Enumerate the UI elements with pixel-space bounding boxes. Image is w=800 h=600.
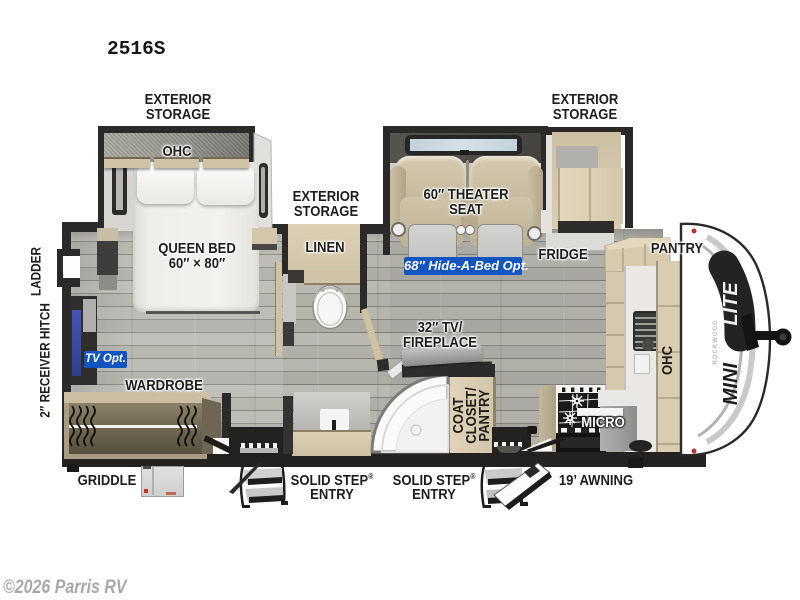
svg-text:ROCKWOOD: ROCKWOOD <box>713 320 719 365</box>
svg-text:LITE: LITE <box>720 282 742 326</box>
svg-text:MINI: MINI <box>720 362 742 405</box>
